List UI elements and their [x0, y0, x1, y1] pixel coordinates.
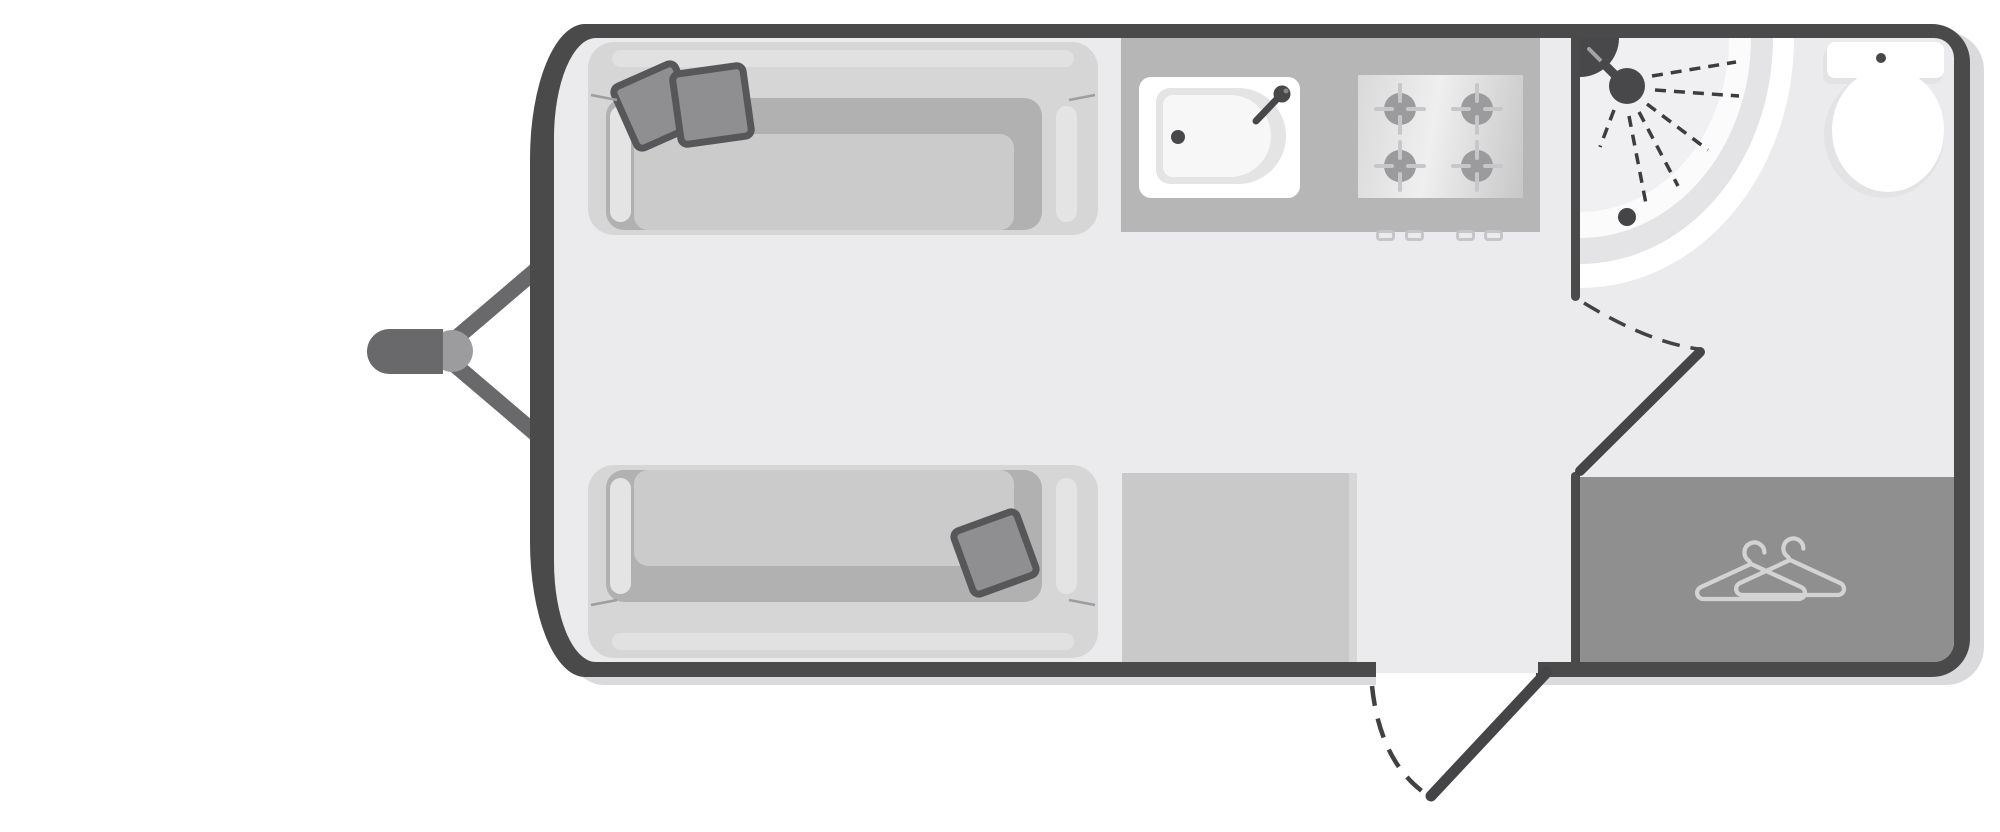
entry-door-opening — [1376, 658, 1538, 673]
stove-knob-4 — [1484, 230, 1503, 241]
entry-door — [1372, 672, 1547, 796]
entry-door-opening-outside — [1376, 673, 1536, 690]
scatter-pillow-2 — [668, 61, 756, 149]
tow-hitch-bar — [367, 329, 443, 374]
hob-burner-4 — [1461, 150, 1493, 182]
wardrobe-wall — [1571, 472, 1580, 662]
sink-drain-icon — [1171, 130, 1185, 144]
sofa-bottom-backrest — [612, 633, 1074, 650]
sofa-bottom-armrest-right — [1056, 478, 1077, 594]
stove-knob-3 — [1456, 230, 1475, 241]
lower-counter — [1122, 473, 1357, 662]
entry-door-swing — [1372, 686, 1426, 794]
hob-burner-1 — [1384, 93, 1416, 125]
hob-4-burner — [1358, 75, 1523, 198]
washroom-wall-upper — [1571, 38, 1580, 301]
shower-drain-icon — [1618, 208, 1636, 226]
hob-burner-3 — [1384, 150, 1416, 182]
toilet-flush-button-icon — [1876, 53, 1886, 63]
wardrobe-cabinet — [1580, 477, 1954, 662]
sofa-top-cushion — [634, 134, 1014, 230]
sofa-top-backrest — [612, 50, 1074, 67]
lower-counter-edge — [1349, 473, 1357, 662]
shower-head-icon — [1609, 68, 1645, 104]
sofa-bottom-armrest-left — [610, 478, 631, 594]
stove-knob-2 — [1405, 230, 1424, 241]
toilet-bowl — [1832, 68, 1944, 192]
stove-knob-1 — [1376, 230, 1395, 241]
sofa-top-armrest-right — [1056, 106, 1077, 222]
hob-burner-2 — [1461, 93, 1493, 125]
caravan-floorplan — [0, 0, 2000, 832]
entry-door-leaf — [1431, 672, 1547, 796]
